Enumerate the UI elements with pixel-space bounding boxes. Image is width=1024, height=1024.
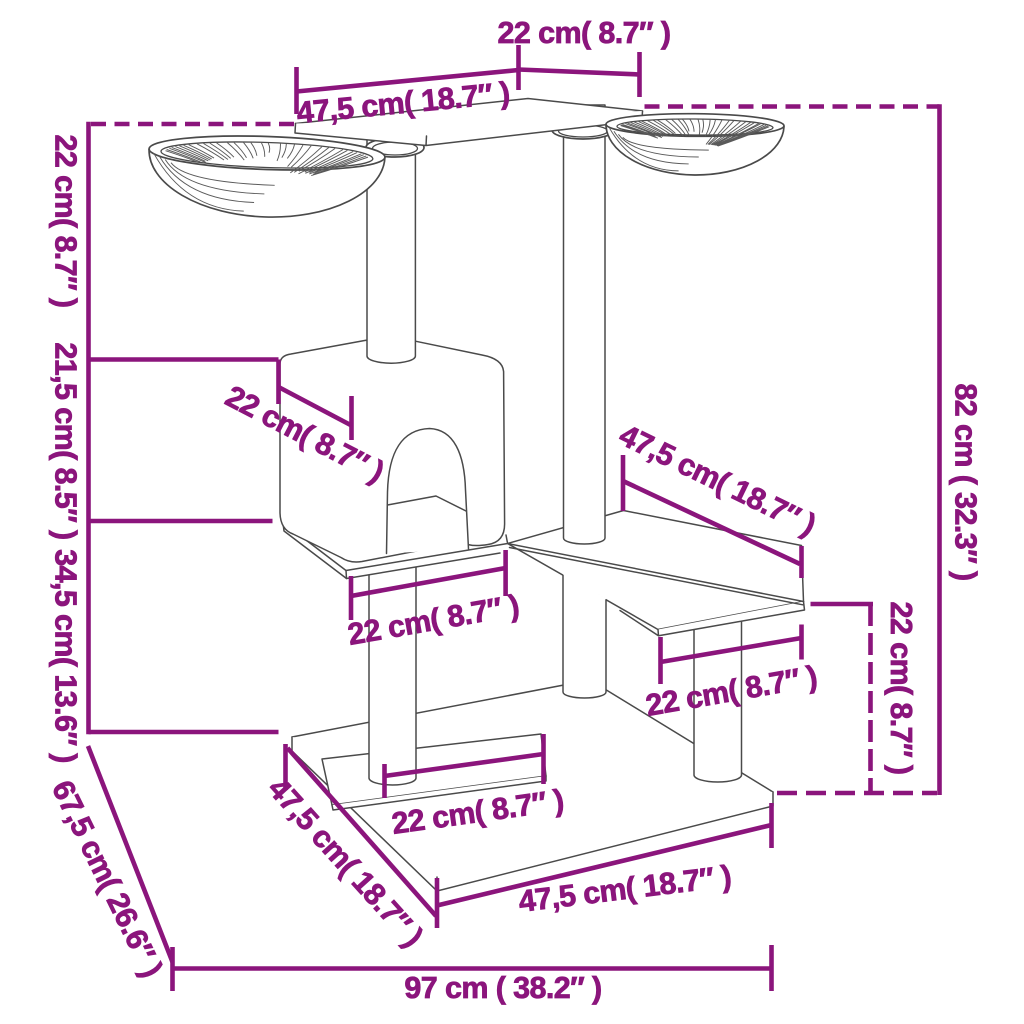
svg-text:22 cm( 8.7″ ): 22 cm( 8.7″ ): [498, 16, 671, 50]
svg-text:22 cm( 8.7″ ): 22 cm( 8.7″ ): [884, 602, 918, 775]
svg-text:82 cm ( 32.3″ ): 82 cm ( 32.3″ ): [949, 383, 983, 580]
svg-text:34,5 cm( 13.6″ ): 34,5 cm( 13.6″ ): [49, 549, 83, 763]
svg-text:21,5 cm( 8.5″ ): 21,5 cm( 8.5″ ): [49, 342, 83, 539]
svg-text:97 cm ( 38.2″ ): 97 cm ( 38.2″ ): [404, 971, 601, 1005]
svg-text:22 cm( 8.7″ ): 22 cm( 8.7″ ): [49, 135, 83, 308]
